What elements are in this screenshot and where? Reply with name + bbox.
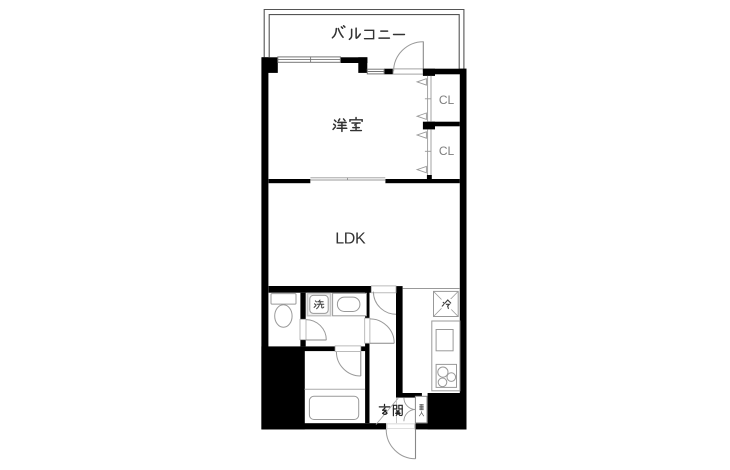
svg-text:CL: CL xyxy=(439,144,455,158)
svg-text:CL: CL xyxy=(439,93,455,107)
svg-text:LDK: LDK xyxy=(335,231,366,248)
